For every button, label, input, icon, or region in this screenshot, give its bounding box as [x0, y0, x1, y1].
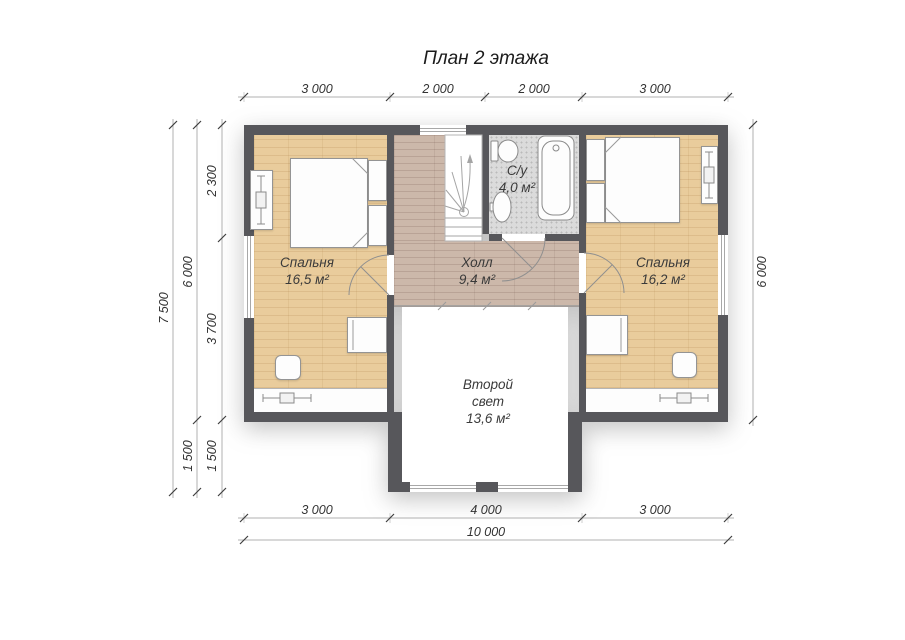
wall-bedroomleft-hall-lower — [387, 295, 394, 412]
room-area: 4,0 м² — [487, 179, 547, 196]
dim-bottom-3: 3 000 — [615, 503, 695, 517]
room-label-bedroom-left: Спальня 16,5 м² — [247, 254, 367, 288]
room-label-second-light: Второй свет 13,6 м² — [448, 376, 528, 427]
wall-secondlight-right — [568, 412, 582, 492]
room-area: 9,4 м² — [417, 271, 537, 288]
room-area: 16,2 м² — [603, 271, 723, 288]
bed-right — [605, 137, 680, 223]
dim-top-1: 3 000 — [277, 82, 357, 96]
wall-bottom-right — [580, 412, 728, 422]
window-top — [420, 125, 466, 135]
dim-right: 6 000 — [755, 242, 769, 302]
wall-top-left — [244, 125, 420, 135]
dim-left-total: 7 500 — [157, 278, 171, 338]
bed-right-headboard-top — [586, 139, 605, 181]
room-label-bedroom-right: Спальня 16,2 м² — [603, 254, 723, 288]
dim-left-inner-2: 3 700 — [205, 299, 219, 359]
door-opening-bedroom-right — [579, 253, 586, 293]
wall-secondlight-left — [388, 412, 402, 492]
desk-left — [347, 317, 387, 353]
door-opening-bedroom-left — [387, 255, 394, 295]
desk-right — [586, 315, 628, 355]
wall-secondlight-bottom-a — [402, 482, 410, 492]
dim-top-4: 3 000 — [615, 82, 695, 96]
dim-bottom-2: 4 000 — [446, 503, 526, 517]
wall-right-lower — [718, 315, 728, 422]
radiator-niche-right — [701, 146, 718, 204]
wall-secondlight-pier — [476, 482, 498, 492]
stairs-area — [445, 135, 482, 241]
dim-left-middle-1: 6 000 — [181, 242, 195, 302]
room-area: 16,5 м² — [247, 271, 367, 288]
dim-left-inner-1: 2 300 — [205, 151, 219, 211]
window-secondlight-1 — [410, 482, 476, 492]
wall-top-right — [466, 125, 728, 135]
room-label-bathroom: С/у 4,0 м² — [487, 162, 547, 196]
wall-bottom-left — [244, 412, 390, 422]
room-name: Холл — [417, 254, 537, 271]
room-name: Спальня — [603, 254, 723, 271]
wall-bathroom-bedroomright-lower — [579, 293, 586, 412]
dim-top-3: 2 000 — [494, 82, 574, 96]
dim-bottom-1: 3 000 — [277, 503, 357, 517]
wall-bathroom-bottom-a — [489, 234, 502, 241]
window-secondlight-2 — [498, 482, 568, 492]
floor-plan — [0, 0, 905, 640]
wall-bathroom-bottom-b — [545, 234, 586, 241]
room-area: 13,6 м² — [448, 410, 528, 427]
dim-left-middle-2: 1 500 — [181, 426, 195, 486]
wall-left-lower — [244, 318, 254, 422]
bed-left-headboard-bottom — [368, 205, 387, 246]
bedroom-left-low-zone — [254, 388, 387, 412]
door-opening-bathroom — [502, 234, 545, 241]
chair-left — [275, 355, 301, 380]
bed-left — [290, 158, 368, 248]
dim-top-2: 2 000 — [398, 82, 478, 96]
page-title: План 2 этажа — [286, 48, 686, 70]
dim-bottom-total: 10 000 — [446, 525, 526, 539]
wall-bedroomleft-hall-upper — [387, 135, 394, 255]
bed-left-headboard-top — [368, 160, 387, 201]
bed-right-headboard-bottom — [586, 183, 605, 223]
bedroom-right-low-zone — [586, 388, 718, 412]
hall-floor-upper — [394, 135, 445, 241]
room-name: Второй свет — [448, 376, 528, 410]
room-name: С/у — [487, 162, 547, 179]
dim-left-inner-3: 1 500 — [205, 426, 219, 486]
wall-right-upper — [718, 135, 728, 235]
radiator-niche-left — [250, 170, 273, 230]
chair-right — [672, 352, 697, 378]
room-label-hall: Холл 9,4 м² — [417, 254, 537, 288]
room-name: Спальня — [247, 254, 367, 271]
floor-plan-page: План 2 этажа — [0, 0, 905, 640]
